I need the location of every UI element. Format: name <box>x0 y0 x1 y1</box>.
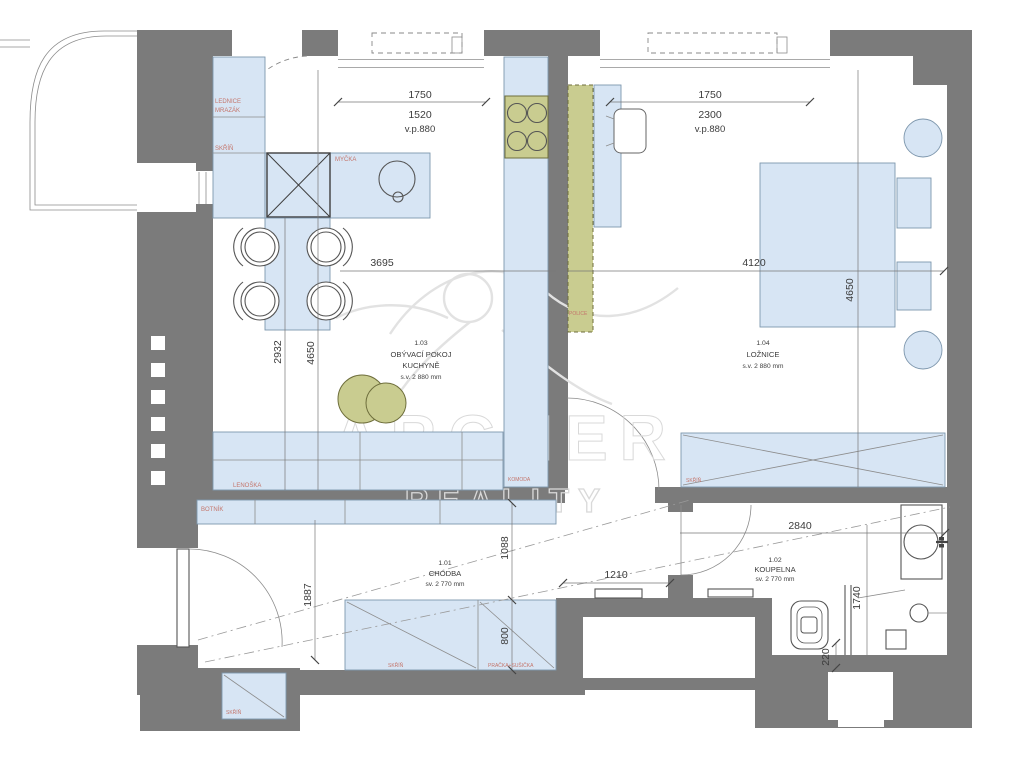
label-kitchen-wardrobe: SKŘÍŇ <box>215 144 233 152</box>
washbasin <box>901 505 948 579</box>
bedside-circle-bottom <box>904 331 942 369</box>
svg-text:1.03: 1.03 <box>414 340 427 347</box>
svg-text:220: 220 <box>820 648 832 666</box>
svg-text:KUCHYNĚ: KUCHYNĚ <box>402 361 439 370</box>
svg-text:1210: 1210 <box>604 569 628 581</box>
svg-text:1.02: 1.02 <box>768 557 781 564</box>
svg-text:4120: 4120 <box>742 257 766 269</box>
svg-text:2932: 2932 <box>272 340 284 364</box>
svg-text:4650: 4650 <box>305 341 317 365</box>
label-dishwasher: MYČKA <box>335 156 356 163</box>
svg-text:v.p.880: v.p.880 <box>695 124 725 135</box>
daybed <box>213 432 503 490</box>
label-komoda: KOMODA <box>508 477 531 483</box>
room-label-bedroom: 1.04 LOŽNICE s.v. 2 880 mm <box>743 340 784 370</box>
balcony-side-window <box>199 172 206 204</box>
svg-text:1887: 1887 <box>302 583 314 607</box>
dim-hall-passage: 1210 <box>559 569 674 587</box>
svg-text:1520: 1520 <box>408 109 432 121</box>
poufs <box>338 375 406 423</box>
svg-text:v.p.880: v.p.880 <box>405 124 435 135</box>
svg-text:1088: 1088 <box>499 536 511 560</box>
fridge-cabinet <box>213 57 265 218</box>
svg-text:4650: 4650 <box>844 278 856 302</box>
wall-niche-left <box>595 589 642 598</box>
bedside-circle-top <box>904 119 942 157</box>
dim-shower-length: 1740 <box>851 525 867 655</box>
nightstand-top <box>897 178 931 228</box>
hall-wardrobe <box>345 600 556 670</box>
label-entry-wardrobe: SKŘÍŇ <box>226 708 242 716</box>
svg-text:1740: 1740 <box>851 586 863 610</box>
dim-hallway-length: 1887 <box>302 520 319 664</box>
police-shelf <box>568 85 593 332</box>
svg-text:2840: 2840 <box>788 520 812 532</box>
dim-bathroom-width: 2840 <box>680 520 949 537</box>
svg-text:s.v. 2 880 mm: s.v. 2 880 mm <box>401 374 442 381</box>
cooktop <box>505 96 548 158</box>
dim-window-left: 1750 1520 v.p.880 <box>334 89 490 135</box>
svg-text:2300: 2300 <box>698 109 722 121</box>
dim-bedroom-depth: 4650 <box>844 70 858 487</box>
label-freezer: MRAZÁK <box>215 107 240 114</box>
svg-text:CHODBA: CHODBA <box>429 569 462 578</box>
svg-text:sv. 2 770 mm: sv. 2 770 mm <box>755 576 795 583</box>
svg-text:3695: 3695 <box>370 257 394 269</box>
svg-text:LOŽNICE: LOŽNICE <box>747 350 780 359</box>
svg-text:sv. 2 770 mm: sv. 2 770 mm <box>425 581 465 588</box>
nightstand-bottom <box>897 262 931 310</box>
label-police: POLICE <box>569 311 588 317</box>
label-daybed: LENOŠKA <box>233 482 261 489</box>
bed <box>760 163 895 327</box>
svg-text:OBÝVACÍ POKOJ: OBÝVACÍ POKOJ <box>390 350 451 359</box>
kitchen-unit-x <box>267 153 330 217</box>
svg-text:800: 800 <box>499 627 511 645</box>
svg-text:1.01: 1.01 <box>438 560 451 567</box>
label-shoe-cabinet: BOTNÍK <box>201 506 223 513</box>
svg-text:s.v. 2 880 mm: s.v. 2 880 mm <box>743 363 784 370</box>
floor-plan: ARCHER REALITY <box>0 0 1019 768</box>
bedroom-wardrobe <box>681 433 945 487</box>
room-label-bathroom: 1.02 KOUPELNA sv. 2 770 mm <box>754 557 796 583</box>
kitchen-window <box>338 33 484 68</box>
label-washer-dryer: PRAČKA+SUŠIČKA <box>488 662 534 669</box>
label-fridge: LEDNICE <box>215 99 241 105</box>
svg-text:1750: 1750 <box>408 89 432 101</box>
room-label-hallway: 1.01 CHODBA sv. 2 770 mm <box>425 560 465 588</box>
svg-text:KOUPELNA: KOUPELNA <box>754 565 796 574</box>
label-hall-wardrobe: SKŘÍŇ <box>388 661 404 669</box>
desk <box>594 85 621 227</box>
entrance-door <box>177 549 282 647</box>
toilet <box>791 601 828 649</box>
bathroom-door <box>681 505 751 575</box>
wall-niche-right <box>708 589 753 597</box>
svg-text:1.04: 1.04 <box>756 340 769 347</box>
shoe-cabinet <box>197 500 556 524</box>
svg-text:1750: 1750 <box>698 89 722 101</box>
label-bedroom-wardrobe: SKŘÍŇ <box>686 476 702 484</box>
bedroom-window <box>600 33 830 68</box>
